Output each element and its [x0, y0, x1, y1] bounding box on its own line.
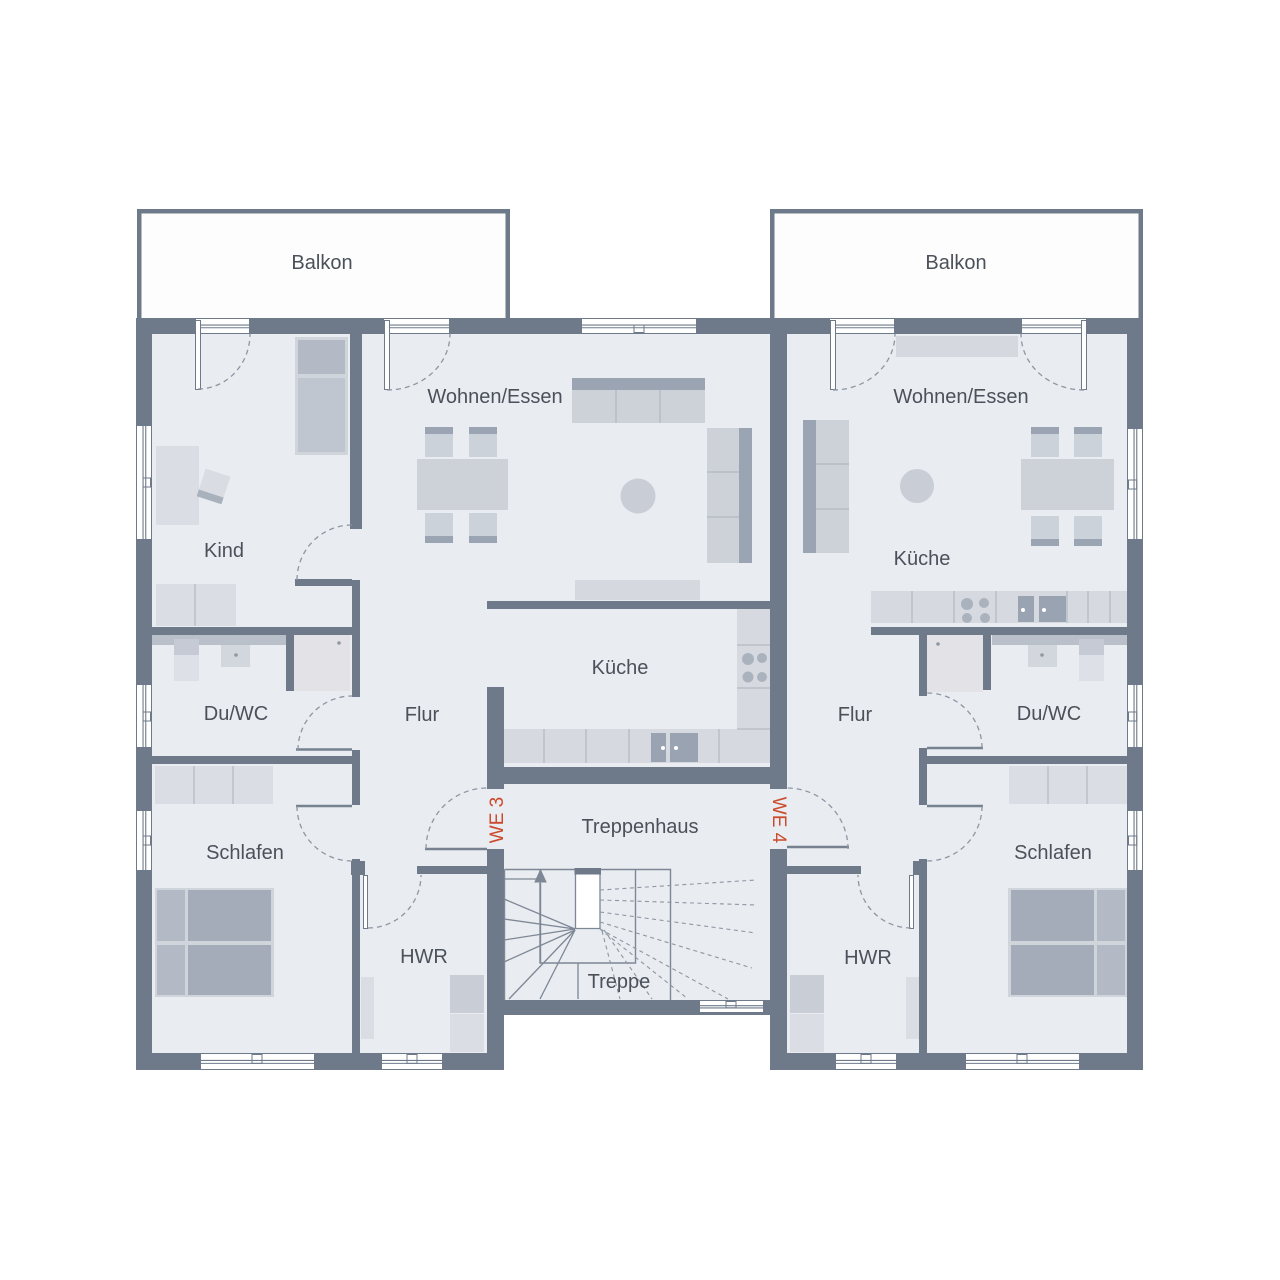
- svg-text:Flur: Flur: [838, 704, 873, 726]
- svg-text:Küche: Küche: [592, 657, 649, 679]
- svg-text:Balkon: Balkon: [291, 252, 352, 274]
- svg-text:Wohnen/Essen: Wohnen/Essen: [893, 386, 1028, 408]
- svg-text:Treppenhaus: Treppenhaus: [581, 816, 698, 838]
- svg-text:Treppe: Treppe: [588, 971, 651, 993]
- svg-text:Balkon: Balkon: [925, 252, 986, 274]
- svg-text:Küche: Küche: [894, 548, 951, 570]
- svg-text:WE 3: WE 3: [487, 797, 508, 843]
- svg-text:Schlafen: Schlafen: [1014, 842, 1092, 864]
- svg-text:Du/WC: Du/WC: [204, 703, 268, 725]
- svg-text:Schlafen: Schlafen: [206, 842, 284, 864]
- svg-text:Flur: Flur: [405, 704, 440, 726]
- svg-text:Du/WC: Du/WC: [1017, 703, 1081, 725]
- svg-text:WE 4: WE 4: [768, 797, 789, 844]
- svg-text:HWR: HWR: [400, 946, 448, 968]
- svg-text:Wohnen/Essen: Wohnen/Essen: [427, 386, 562, 408]
- svg-text:Kind: Kind: [204, 540, 244, 562]
- svg-text:HWR: HWR: [844, 947, 892, 969]
